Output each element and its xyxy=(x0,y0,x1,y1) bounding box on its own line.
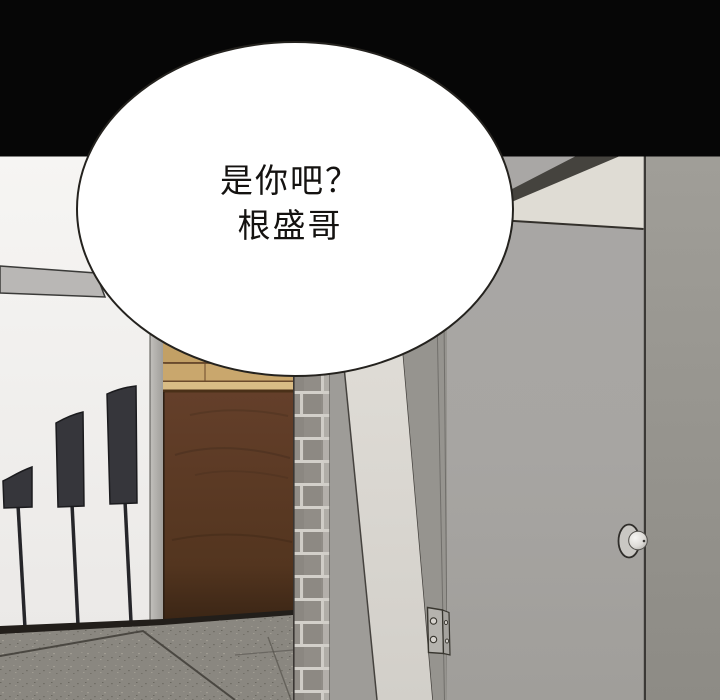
wall-corner-trim xyxy=(150,318,164,628)
speech-line-2: 根盛哥 xyxy=(120,203,460,248)
door-hinge xyxy=(428,608,451,656)
comic-panel: 是你吧？ 根盛哥 xyxy=(0,0,720,700)
speech-line-1: 是你吧？ xyxy=(120,158,460,203)
banner-flag-2 xyxy=(56,412,84,507)
right-wall xyxy=(646,155,720,700)
banner-flag-3 xyxy=(107,386,137,504)
scene-artwork xyxy=(0,0,720,700)
wood-door xyxy=(163,392,293,623)
speech-text: 是你吧？ 根盛哥 xyxy=(120,158,460,248)
